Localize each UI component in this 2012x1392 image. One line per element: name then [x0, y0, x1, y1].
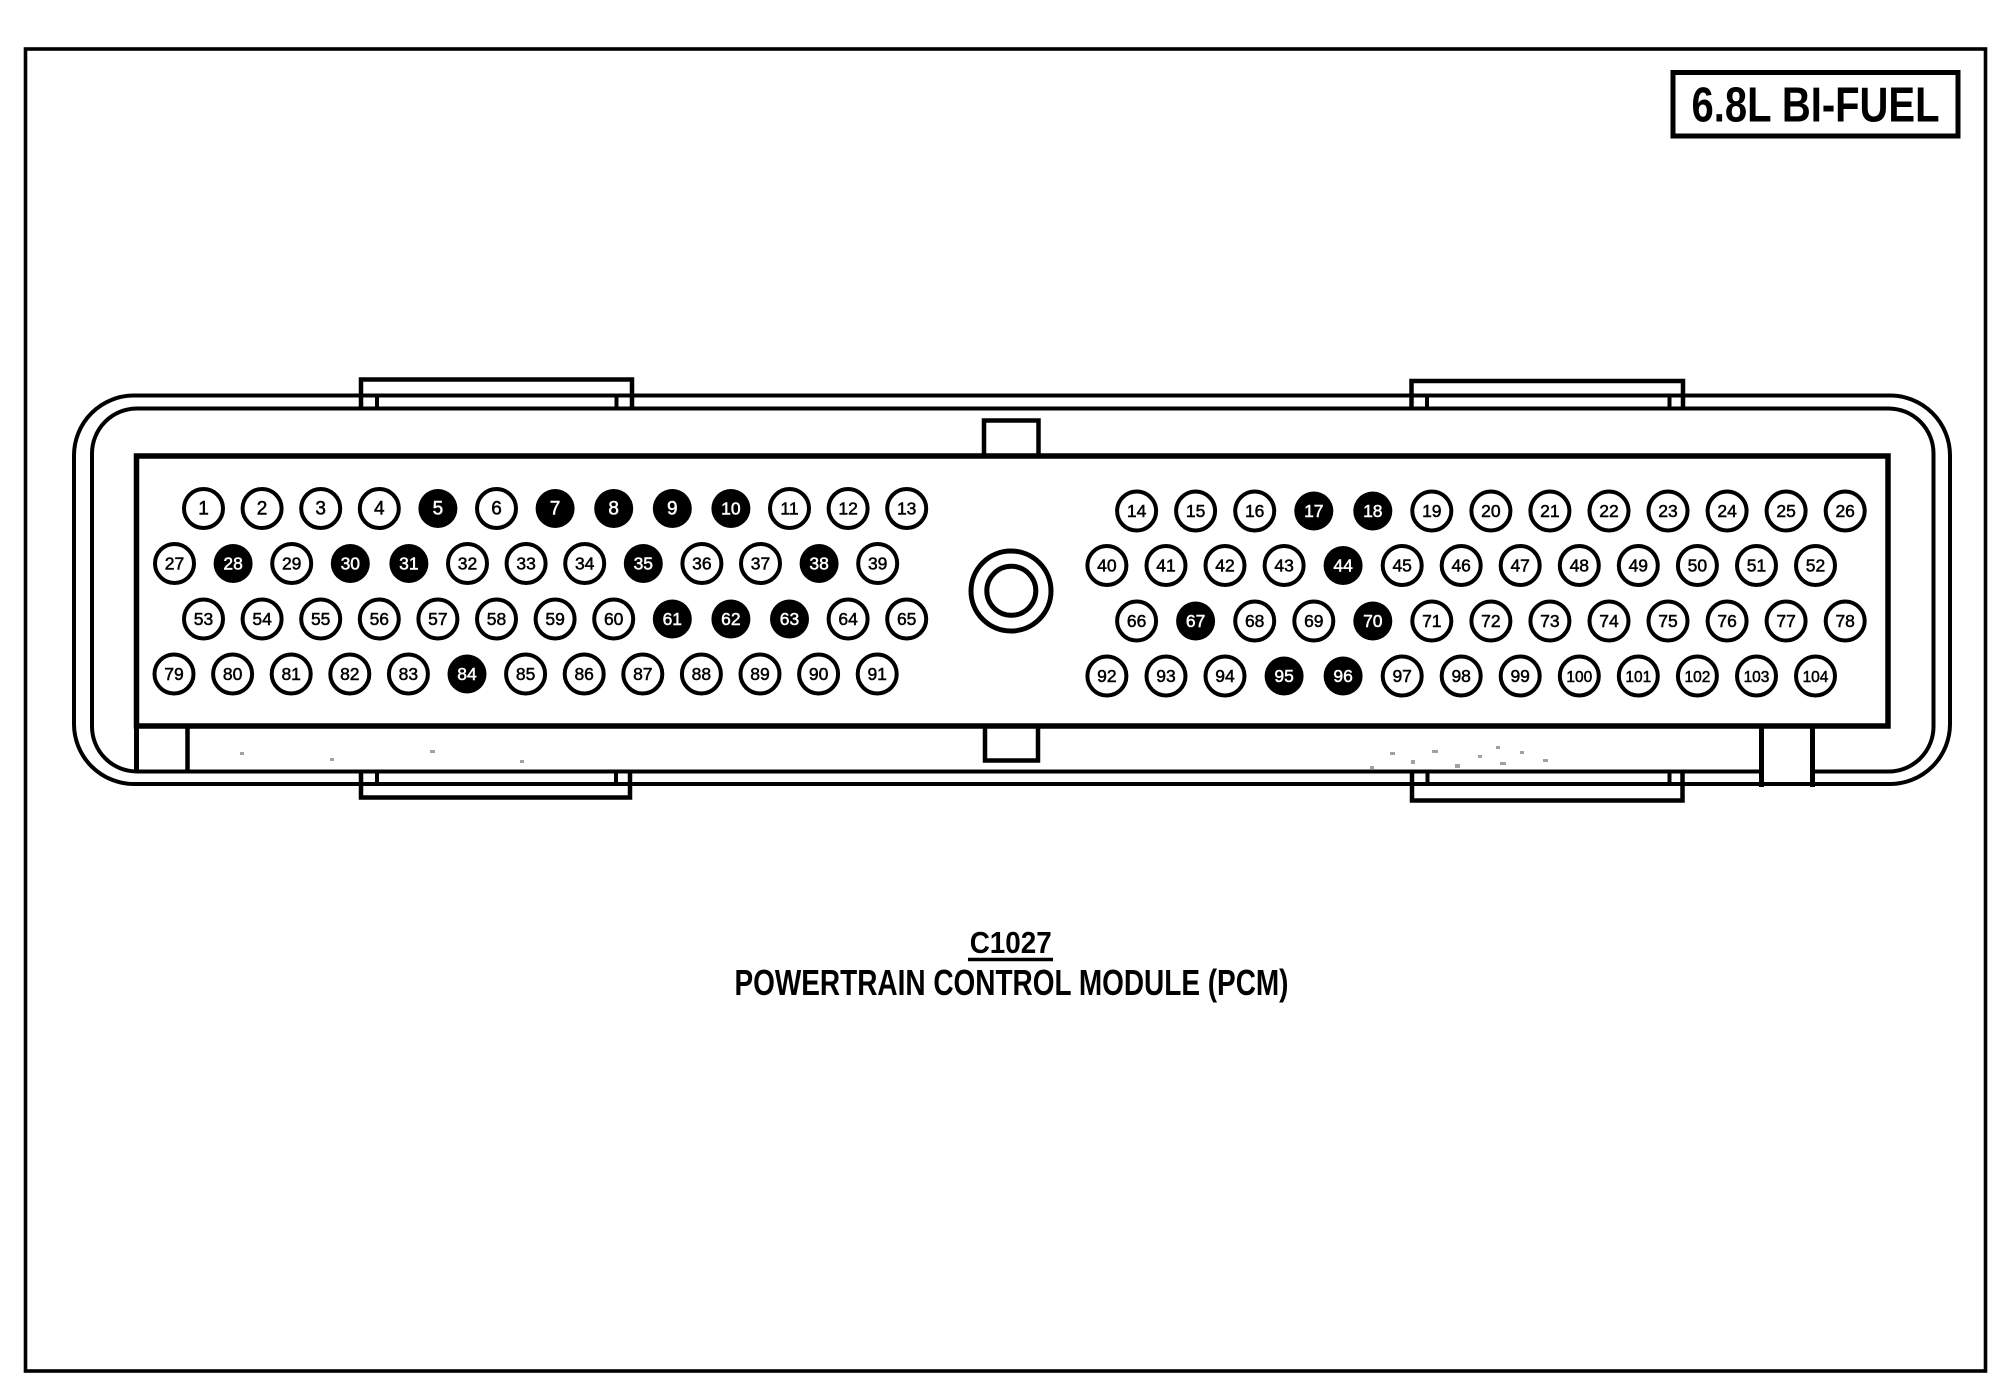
svg-text:100: 100	[1566, 669, 1592, 686]
svg-text:75: 75	[1658, 611, 1677, 631]
svg-text:70: 70	[1363, 611, 1383, 631]
svg-text:39: 39	[868, 554, 887, 574]
svg-text:85: 85	[516, 664, 535, 684]
svg-text:72: 72	[1481, 611, 1500, 631]
svg-text:44: 44	[1333, 556, 1353, 576]
svg-text:15: 15	[1186, 501, 1205, 521]
svg-text:2: 2	[257, 499, 268, 520]
svg-text:11: 11	[780, 499, 798, 519]
svg-text:87: 87	[633, 664, 652, 684]
svg-text:C1027: C1027	[970, 925, 1052, 960]
svg-text:92: 92	[1097, 666, 1116, 686]
svg-text:7: 7	[550, 499, 561, 520]
svg-text:104: 104	[1803, 669, 1829, 686]
svg-text:26: 26	[1835, 501, 1854, 521]
svg-text:42: 42	[1215, 556, 1234, 576]
svg-text:POWERTRAIN CONTROL MODULE (PCM: POWERTRAIN CONTROL MODULE (PCM)	[735, 962, 1289, 1003]
svg-text:78: 78	[1835, 611, 1854, 631]
svg-text:20: 20	[1481, 501, 1501, 521]
svg-text:95: 95	[1274, 666, 1293, 686]
svg-text:94: 94	[1215, 666, 1235, 686]
svg-text:5: 5	[433, 499, 444, 520]
svg-text:54: 54	[252, 609, 272, 629]
svg-text:48: 48	[1570, 556, 1589, 576]
svg-text:77: 77	[1776, 611, 1795, 631]
svg-text:62: 62	[721, 609, 740, 629]
svg-text:16: 16	[1245, 501, 1264, 521]
svg-text:63: 63	[780, 609, 799, 629]
svg-text:38: 38	[809, 554, 828, 574]
svg-text:88: 88	[692, 664, 711, 684]
svg-text:49: 49	[1629, 556, 1648, 576]
svg-text:59: 59	[545, 609, 564, 629]
svg-text:30: 30	[341, 554, 361, 574]
svg-text:22: 22	[1599, 501, 1618, 521]
svg-text:50: 50	[1688, 556, 1708, 576]
svg-text:60: 60	[604, 609, 624, 629]
svg-text:8: 8	[608, 499, 619, 520]
svg-text:101: 101	[1625, 669, 1651, 686]
svg-text:34: 34	[575, 554, 595, 574]
svg-text:33: 33	[516, 554, 535, 574]
svg-text:6: 6	[491, 499, 502, 520]
svg-text:23: 23	[1658, 501, 1677, 521]
svg-text:32: 32	[458, 554, 477, 574]
svg-text:58: 58	[487, 609, 506, 629]
svg-text:68: 68	[1245, 611, 1264, 631]
svg-text:29: 29	[282, 554, 301, 574]
svg-text:98: 98	[1451, 666, 1470, 686]
svg-text:82: 82	[340, 664, 359, 684]
svg-text:6.8L BI-FUEL: 6.8L BI-FUEL	[1692, 79, 1940, 133]
svg-text:93: 93	[1156, 666, 1175, 686]
svg-text:3: 3	[315, 499, 326, 520]
svg-text:71: 71	[1422, 611, 1441, 631]
svg-text:66: 66	[1127, 611, 1146, 631]
svg-text:99: 99	[1510, 666, 1529, 686]
svg-text:40: 40	[1097, 556, 1117, 576]
svg-text:45: 45	[1392, 556, 1411, 576]
svg-text:80: 80	[223, 664, 243, 684]
svg-text:10: 10	[721, 499, 741, 519]
svg-text:19: 19	[1422, 501, 1441, 521]
svg-text:14: 14	[1127, 501, 1147, 521]
svg-text:86: 86	[574, 664, 593, 684]
svg-text:56: 56	[370, 609, 389, 629]
svg-text:97: 97	[1392, 666, 1411, 686]
svg-text:91: 91	[867, 664, 886, 684]
svg-text:89: 89	[750, 664, 769, 684]
svg-text:12: 12	[838, 499, 857, 519]
svg-text:46: 46	[1451, 556, 1470, 576]
svg-text:1: 1	[198, 499, 209, 520]
svg-text:9: 9	[667, 499, 678, 520]
svg-text:79: 79	[164, 664, 183, 684]
svg-text:47: 47	[1510, 556, 1529, 576]
svg-text:25: 25	[1776, 501, 1795, 521]
svg-text:13: 13	[897, 499, 916, 519]
svg-text:4: 4	[374, 499, 385, 520]
svg-text:36: 36	[692, 554, 711, 574]
svg-text:17: 17	[1304, 501, 1323, 521]
svg-text:41: 41	[1156, 556, 1175, 576]
svg-text:24: 24	[1717, 501, 1737, 521]
svg-text:102: 102	[1684, 669, 1710, 686]
svg-text:52: 52	[1806, 556, 1825, 576]
svg-text:31: 31	[399, 554, 418, 574]
svg-text:53: 53	[194, 609, 213, 629]
svg-text:64: 64	[838, 609, 858, 629]
svg-text:21: 21	[1540, 501, 1559, 521]
svg-text:81: 81	[281, 664, 300, 684]
svg-text:35: 35	[634, 554, 653, 574]
svg-text:96: 96	[1333, 666, 1352, 686]
svg-text:83: 83	[399, 664, 418, 684]
svg-text:90: 90	[809, 664, 829, 684]
svg-text:37: 37	[751, 554, 770, 574]
svg-text:43: 43	[1274, 556, 1293, 576]
svg-text:84: 84	[457, 664, 477, 684]
svg-text:27: 27	[165, 554, 184, 574]
svg-text:73: 73	[1540, 611, 1559, 631]
svg-text:18: 18	[1363, 501, 1382, 521]
svg-text:55: 55	[311, 609, 330, 629]
svg-text:61: 61	[663, 609, 682, 629]
svg-text:51: 51	[1747, 556, 1766, 576]
svg-text:76: 76	[1717, 611, 1736, 631]
svg-text:57: 57	[428, 609, 447, 629]
svg-text:103: 103	[1744, 669, 1770, 686]
svg-text:28: 28	[223, 554, 242, 574]
svg-text:67: 67	[1186, 611, 1205, 631]
svg-text:74: 74	[1599, 611, 1619, 631]
svg-text:65: 65	[897, 609, 916, 629]
svg-text:69: 69	[1304, 611, 1323, 631]
